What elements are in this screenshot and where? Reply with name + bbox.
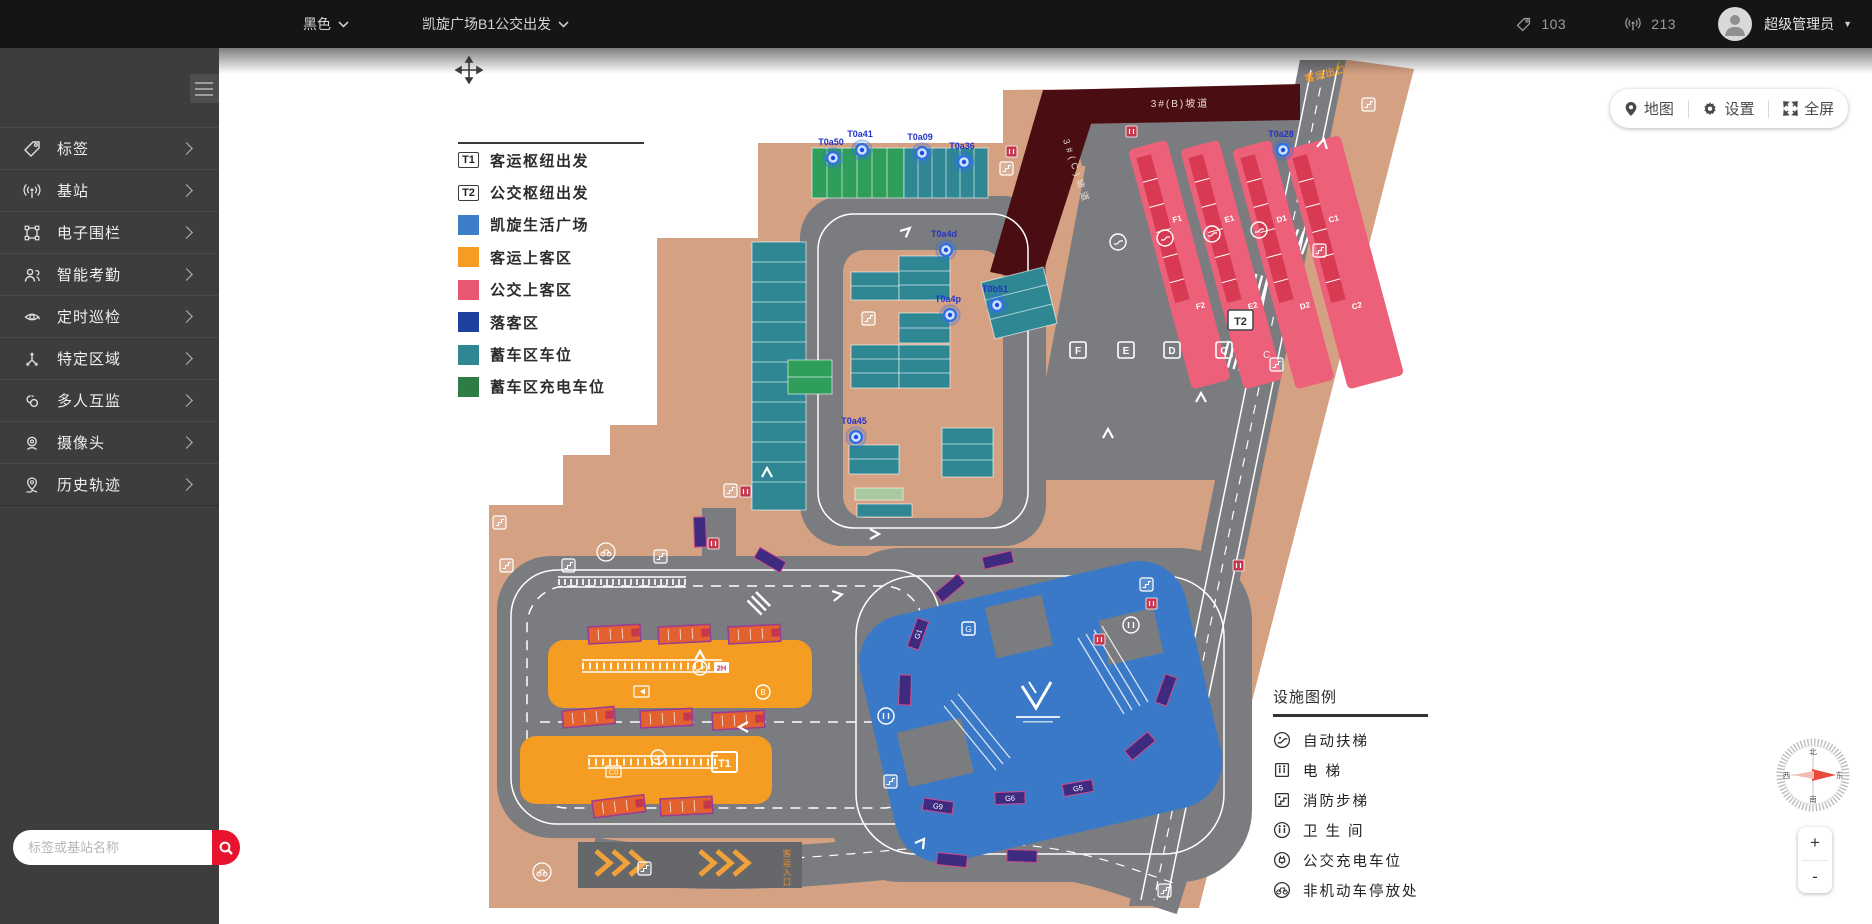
lane-c-label: C: [1263, 350, 1270, 361]
stairs-marker: [884, 775, 897, 788]
sidebar-item-6[interactable]: 特定区域: [0, 337, 219, 379]
toilet-marker: [1006, 146, 1017, 157]
chevron-right-icon: [180, 226, 193, 239]
stairs-marker: [1158, 884, 1171, 897]
legend-swatch: [458, 377, 479, 397]
search-bar: [13, 830, 203, 865]
toilet-marker: [1146, 598, 1157, 609]
chevron-down-icon: [338, 21, 349, 28]
svg-text:T0a4d: T0a4d: [931, 229, 957, 239]
svg-text:南: 南: [1809, 794, 1817, 804]
toilet-icon: [1273, 821, 1291, 839]
ramp-b-label: 3#(B)坡道: [1151, 97, 1209, 110]
coach-stall: [728, 624, 781, 644]
facility-label: 非机动车停放处: [1303, 880, 1419, 901]
camera-icon: [22, 433, 42, 453]
location-pin-icon: [1624, 101, 1638, 117]
map-legend-item: T1客运枢纽出发: [458, 144, 644, 176]
legend-label: 客运枢纽出发: [490, 150, 589, 171]
coach-stall: [640, 708, 693, 728]
tag-icon: [1515, 16, 1532, 33]
fence-icon: [22, 223, 42, 243]
map-toolbar: 地图 设置 全屏: [1610, 89, 1848, 128]
chevron-right-icon: [180, 184, 193, 197]
facility-legend-item: 消防步梯: [1273, 786, 1428, 815]
stairs-marker: [638, 862, 651, 875]
svg-text:C: C: [1220, 346, 1227, 357]
sidebar-item-7[interactable]: 多人互监: [0, 379, 219, 421]
bicycle-parking-icon: [1273, 881, 1291, 899]
escalator-icon: [1273, 731, 1291, 749]
zoom-controls: + -: [1798, 827, 1832, 893]
chevron-right-icon: [180, 394, 193, 407]
tag-icon: [22, 139, 42, 159]
toilet-marker: [1126, 126, 1137, 137]
chevron-right-icon: [180, 352, 193, 365]
zoom-in-button[interactable]: +: [1798, 827, 1832, 860]
toilet-marker: [1094, 634, 1105, 645]
stairs-marker: [1270, 358, 1283, 371]
legend-label: 凯旋生活广场: [490, 214, 589, 235]
facility-legend-title: 设施图例: [1273, 686, 1428, 707]
stairs-marker: [562, 559, 575, 572]
legend-swatch: [458, 312, 479, 332]
coach-stall: [562, 706, 615, 727]
legend-chip: T2: [458, 185, 479, 201]
coach-stall: [660, 796, 713, 816]
svg-text:T2: T2: [1234, 316, 1247, 328]
fullscreen-button[interactable]: 全屏: [1783, 98, 1834, 119]
bus-charging-icon: [1273, 851, 1291, 869]
map-legend-item: 蓄车区车位: [458, 338, 644, 370]
map-legend: T1客运枢纽出发T2公交枢纽出发凯旋生活广场客运上客区公交上客区落客区蓄车区车位…: [458, 142, 644, 403]
t2-chip: T2: [1228, 310, 1253, 330]
svg-text:T0a36: T0a36: [949, 141, 975, 151]
svg-text:G: G: [965, 624, 972, 634]
svg-text:G9: G9: [932, 801, 943, 811]
attendance-icon: [22, 265, 42, 285]
antenna-icon: [1624, 15, 1642, 33]
settings-button[interactable]: 设置: [1702, 98, 1754, 119]
zoom-out-button[interactable]: -: [1798, 861, 1832, 894]
facility-legend-item: 非机动车停放处: [1273, 876, 1428, 905]
facility-label: 消防步梯: [1303, 790, 1369, 811]
entrance: 客运入口: [578, 842, 802, 888]
stairs-marker: [1362, 98, 1375, 111]
patrol-icon: [22, 307, 42, 327]
svg-text:T0a41: T0a41: [847, 129, 873, 139]
legend-swatch: [458, 280, 479, 300]
user-icon: [1718, 7, 1752, 41]
map-canvas[interactable]: 3#(B)坡道 3#(C)坡道: [219, 48, 1872, 924]
theme-selector[interactable]: 黑色: [303, 0, 349, 48]
facility-label: 公交充电车位: [1303, 850, 1402, 871]
facility-legend-item: 公交充电车位: [1273, 846, 1428, 875]
svg-text:T0a09: T0a09: [907, 132, 933, 142]
stairs-marker: [1140, 578, 1153, 591]
chevron-right-icon: [180, 478, 193, 491]
svg-text:D: D: [1168, 346, 1175, 357]
map-legend-item: 蓄车区充电车位: [458, 371, 644, 403]
sidebar-item-5[interactable]: 定时巡检: [0, 295, 219, 337]
chevron-right-icon: [180, 310, 193, 323]
sidebar-item-9[interactable]: 历史轨迹: [0, 463, 219, 505]
station-count: 213: [1624, 15, 1676, 33]
svg-text:T1: T1: [718, 758, 731, 770]
chevron-right-icon: [180, 436, 193, 449]
topbar: 黑色 凯旋广场B1公交出发 103 213 超级管理员 ▼: [0, 0, 1872, 48]
legend-chip: T1: [458, 152, 479, 168]
drop-off-stop: [1007, 849, 1037, 862]
svg-text:2H: 2H: [717, 664, 727, 673]
caret-down-icon: ▼: [1843, 19, 1852, 29]
gear-icon: [1702, 101, 1718, 117]
map-selector-label: 凯旋广场B1公交出发: [422, 14, 551, 34]
move-cursor-icon: [455, 56, 483, 89]
map-legend-item: 落客区: [458, 306, 644, 338]
sidebar-item-8[interactable]: 摄像头: [0, 421, 219, 463]
chevron-right-icon: [180, 268, 193, 281]
svg-text:T0a4p: T0a4p: [935, 294, 962, 304]
user-menu[interactable]: 超级管理员 ▼: [1764, 14, 1852, 34]
coach-stall: [658, 624, 711, 644]
history-track-icon: [22, 475, 42, 495]
sidebar-item-2[interactable]: 基站: [0, 169, 219, 211]
entrance-label: 客运入口: [782, 848, 792, 887]
area-icon: [22, 349, 42, 369]
compass: 北 南 西 东: [1775, 737, 1851, 813]
svg-text:F: F: [1075, 346, 1081, 357]
chevron-down-icon: [558, 21, 569, 28]
map-selector[interactable]: 凯旋广场B1公交出发: [422, 0, 569, 48]
app-window: 黑色 凯旋广场B1公交出发 103 213 超级管理员 ▼: [0, 0, 1872, 924]
drop-off-stop: [898, 675, 911, 705]
drop-off-stop: G6: [995, 791, 1025, 804]
tag-count: 103: [1515, 16, 1566, 33]
legend-swatch: [458, 247, 479, 267]
facility-legend-item: 电 梯: [1273, 756, 1428, 785]
avatar[interactable]: [1718, 7, 1752, 41]
legend-label: 公交枢纽出发: [490, 182, 589, 203]
svg-text:北: 北: [1809, 748, 1817, 757]
station-count-value: 213: [1651, 16, 1676, 32]
map-legend-item: 客运上客区: [458, 241, 644, 273]
svg-text:G5: G5: [1072, 783, 1083, 794]
toilet-marker: [740, 486, 751, 497]
fire-stairs-icon: [1273, 791, 1291, 809]
stairs-marker: [1000, 162, 1013, 175]
svg-text:B: B: [760, 688, 765, 697]
facility-legend: 设施图例 自动扶梯电 梯消防步梯卫 生 间公交充电车位非机动车停放处: [1273, 686, 1428, 905]
stairs-marker: [493, 516, 506, 529]
legend-swatch: [458, 215, 479, 235]
stairs-marker: [862, 312, 875, 325]
drop-off-stop: [936, 852, 967, 867]
facility-label: 卫 生 间: [1303, 820, 1365, 841]
facility-label: 电 梯: [1303, 760, 1342, 781]
svg-text:西: 西: [1783, 771, 1791, 780]
menu-toggle[interactable]: [190, 74, 219, 103]
search-icon: [218, 840, 234, 856]
toilet-marker: [708, 538, 719, 549]
search-input[interactable]: [13, 830, 212, 865]
stairs-marker: [724, 484, 737, 497]
svg-text:T0a45: T0a45: [841, 416, 867, 426]
svg-text:T0a50: T0a50: [818, 137, 844, 147]
map-view-button[interactable]: 地图: [1624, 98, 1674, 119]
fullscreen-icon: [1783, 101, 1798, 116]
svg-text:T0b51: T0b51: [982, 284, 1008, 294]
svg-text:E: E: [1123, 346, 1130, 357]
sidebar-item-3[interactable]: 电子围栏: [0, 211, 219, 253]
facility-legend-item: 自动扶梯: [1273, 726, 1428, 755]
svg-text:东: 东: [1836, 770, 1844, 780]
map-legend-item: 公交上客区: [458, 274, 644, 306]
coach-stall: [588, 624, 641, 644]
stairs-marker: [1313, 244, 1326, 257]
sidebar: 标签 基站 电子围栏 智能考勤 定时巡检 特定区域 多人互监 摄像头: [0, 48, 219, 924]
legend-label: 公交上客区: [490, 279, 573, 300]
legend-swatch: [458, 345, 479, 365]
tag-count-value: 103: [1541, 16, 1566, 32]
theme-selector-label: 黑色: [303, 14, 331, 34]
legend-label: 客运上客区: [490, 247, 573, 268]
drop-off-stop: [693, 517, 706, 547]
stairs-marker: [654, 550, 667, 563]
sidebar-item-4[interactable]: 智能考勤: [0, 253, 219, 295]
antenna-icon: [22, 181, 42, 201]
chevron-right-icon: [180, 142, 193, 155]
map-legend-item: T2公交枢纽出发: [458, 176, 644, 208]
stairs-marker: [500, 559, 513, 572]
elevator-icon: [1273, 761, 1291, 779]
group-monitor-icon: [22, 391, 42, 411]
sidebar-item-1[interactable]: 标签: [0, 127, 219, 169]
facility-label: 自动扶梯: [1303, 730, 1369, 751]
svg-text:C0: C0: [609, 768, 619, 777]
svg-text:T0a28: T0a28: [1268, 129, 1294, 139]
legend-label: 蓄车区车位: [490, 344, 573, 365]
user-name: 超级管理员: [1764, 14, 1834, 34]
map-legend-item: 凯旋生活广场: [458, 209, 644, 241]
toilet-marker: [1233, 560, 1244, 571]
facility-legend-item: 卫 生 间: [1273, 816, 1428, 845]
legend-label: 落客区: [490, 312, 540, 333]
legend-label: 蓄车区充电车位: [490, 376, 606, 397]
svg-text:G6: G6: [1005, 794, 1015, 803]
sidebar-menu: 标签 基站 电子围栏 智能考勤 定时巡检 特定区域 多人互监 摄像头: [0, 127, 219, 506]
